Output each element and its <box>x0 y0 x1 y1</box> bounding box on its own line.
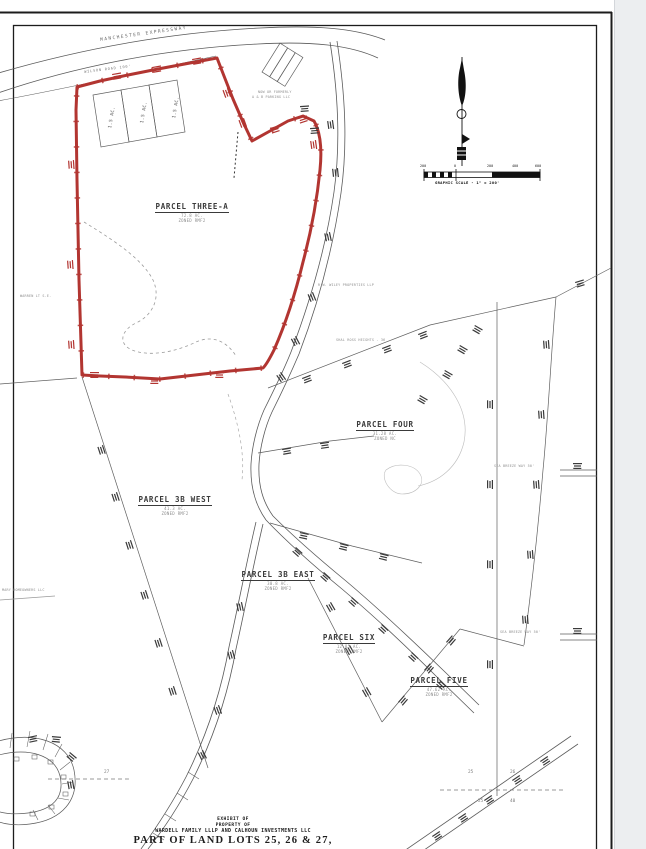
land-lot-number: 25 <box>468 770 473 775</box>
owner-label: A & B PARKING LLC <box>252 95 290 99</box>
scale-tick: 400 <box>512 164 518 168</box>
parcel-zoning: ZONED NC <box>322 436 448 441</box>
land-lot-number: 27 <box>104 770 109 775</box>
scale-caption: GRAPHIC SCALE - 1" = 200' <box>435 180 500 185</box>
parcel-name: PARCEL 3B WEST <box>138 495 211 506</box>
parcel-label-three-a: PARCEL THREE-A 72.8 AC. ZONED RMF2 <box>129 194 255 224</box>
parcel-zoning: ZONED RMF2 <box>376 692 502 697</box>
land-lot-number: 25 <box>478 799 483 804</box>
parcel-label-3b-east: PARCEL 3B EAST 30.8 AC. ZONED RMF2 <box>215 562 341 592</box>
parcel-zoning: ZONED RMF2 <box>286 649 412 654</box>
land-lot-number: 40 <box>510 799 515 804</box>
owner-label: WARREN LT S.E. <box>20 294 51 298</box>
street-label: SEA BREEZE WAY 50' <box>494 464 534 468</box>
parcel-name: PARCEL FIVE <box>410 676 467 687</box>
title-line-landlots: PART OF LAND LOTS 25, 26 & 27, <box>108 835 358 847</box>
scale-tick: 200 <box>420 164 426 168</box>
parcel-label-six: PARCEL SIX 12.85 AC. ZONED RMF2 <box>286 625 412 655</box>
north-arrow-icon <box>457 57 470 166</box>
parcel-name: PARCEL FOUR <box>356 420 413 431</box>
road-linework <box>0 27 578 849</box>
survey-plat-sheet: MANCHESTER EXPRESSWAY WILSON ROAD 100' 1… <box>0 0 646 849</box>
parcel-zoning: ZONED RMF2 <box>215 586 341 591</box>
owner-label: NOW OR FORMERLY <box>258 90 292 94</box>
parcel-name: PARCEL 3B EAST <box>241 570 314 581</box>
survey-annotation-marks <box>28 105 585 841</box>
parcel-zoning: ZONED RMF2 <box>112 511 238 516</box>
parcel-label-five: PARCEL FIVE 47.62 AC. ZONED RMF2 <box>376 668 502 698</box>
parcel-linework <box>0 43 611 840</box>
land-lot-number: 26 <box>510 770 515 775</box>
parcel-label-four: PARCEL FOUR 31.28 AC. ZONED NC <box>322 412 448 442</box>
title-block: EXHIBIT OF PROPERTY OF WARDELL FAMILY LL… <box>108 817 358 847</box>
page-margin <box>614 0 646 849</box>
street-label: SEA BREEZE WAY 50' <box>500 630 540 634</box>
owner-label: MARY HOMEOWNERS LLC <box>2 588 45 592</box>
parcel-name: PARCEL THREE-A <box>155 202 228 213</box>
parcel-zoning: ZONED RMF2 <box>129 218 255 223</box>
parcel-name: PARCEL SIX <box>323 633 375 644</box>
scale-tick: 0 <box>454 164 456 168</box>
scale-tick: 200 <box>487 164 493 168</box>
parcel-label-3b-west: PARCEL 3B WEST 41.3 AC. ZONED RMF2 <box>112 487 238 517</box>
owner-label: SHAL ROSS HEIGHTS - 36 <box>336 338 385 342</box>
sheet-border <box>0 12 612 849</box>
scale-tick: 600 <box>535 164 541 168</box>
owner-label: R.W. WILEY PROPERTIES LLP <box>318 283 374 287</box>
